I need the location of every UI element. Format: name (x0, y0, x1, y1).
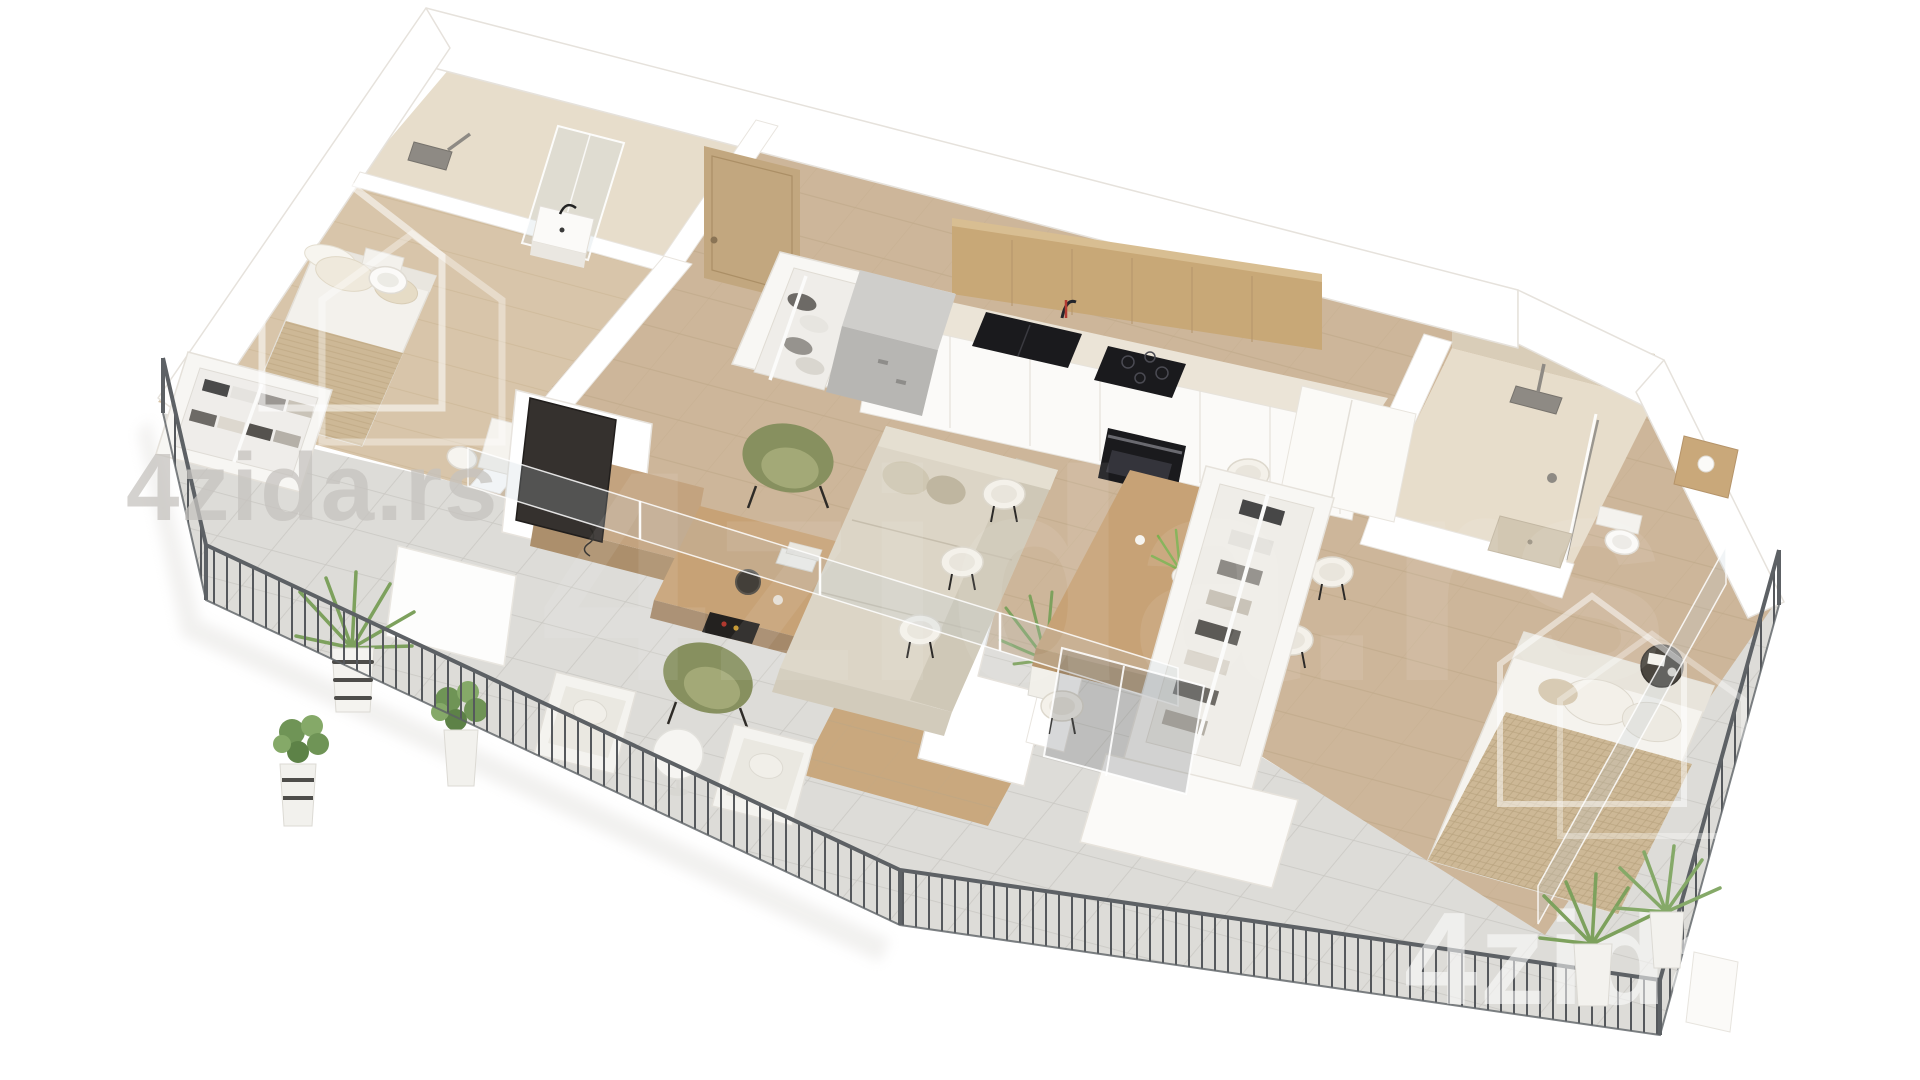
watermark-text-center: 4zida.rs (540, 408, 1673, 744)
palm-right-pot-2 (1650, 912, 1684, 968)
leafy1-pot (444, 730, 478, 786)
watermark-text-top-left: 4zida.rs (126, 434, 500, 541)
palm-right-pot-1 (1574, 944, 1612, 1006)
planter-box (1686, 952, 1738, 1032)
terrace-plant-leafy-2 (273, 715, 329, 826)
sink1-drain (560, 228, 565, 233)
floor-plan-render: 4zida.rs 4zida 4zida.rs (0, 0, 1920, 1080)
vanity-sink (1698, 456, 1714, 472)
leafy2-pot (280, 764, 316, 826)
door-handle-icon (711, 237, 718, 244)
